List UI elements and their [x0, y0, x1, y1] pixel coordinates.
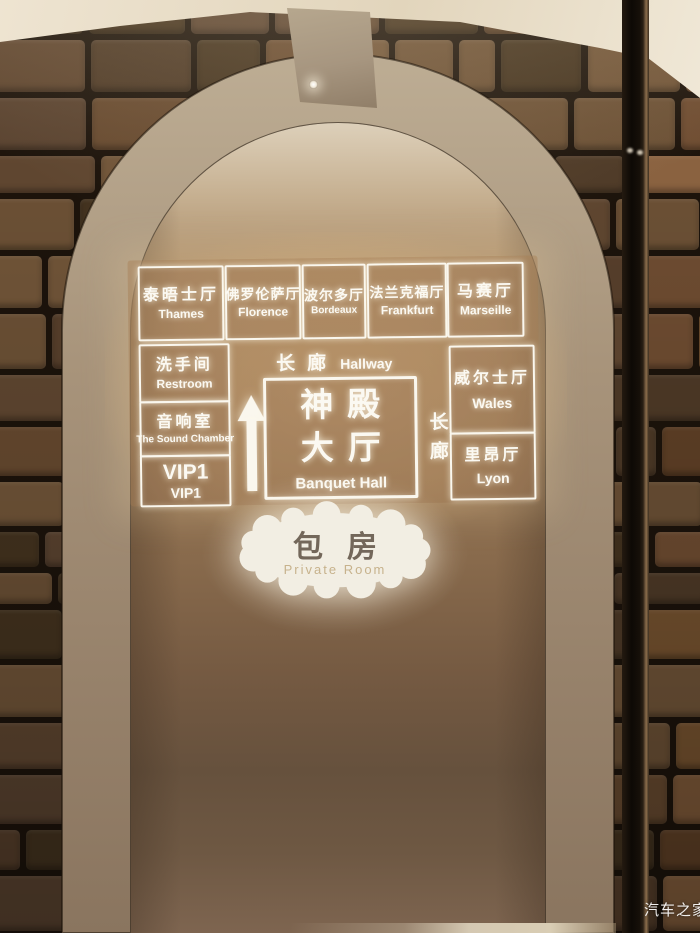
room-name-zh: VIP1	[163, 461, 209, 486]
room-name-zh: 洗手间	[156, 355, 213, 376]
room-box-bordeaux: 波尔多厅 Bordeaux	[302, 264, 367, 340]
room-name-zh: 泰晤士厅	[143, 285, 219, 306]
private-rooms-badge: 包房 Private Room	[233, 500, 437, 606]
room-name-en: The Sound Chamber	[136, 433, 234, 445]
room-name-en: Marseille	[460, 303, 512, 318]
room-box-florence: 佛罗伦萨厅 Florence	[225, 264, 302, 340]
room-name-zh: 法兰克福厅	[369, 284, 444, 302]
hallway-label: 长廊Hallway	[247, 351, 422, 377]
banquet-name-zh-line1: 神殿	[286, 383, 395, 427]
corridor-vertical-label: 长廊	[426, 412, 451, 470]
room-name-en: Thames	[158, 307, 204, 322]
room-name-zh: 佛罗伦萨厅	[225, 286, 300, 304]
photo-scene: 泰晤士厅 Thames 佛罗伦萨厅 Florence 波尔多厅 Bordeaux…	[0, 0, 700, 933]
banquet-name-en: Banquet Hall	[295, 475, 387, 493]
room-box-restroom: 洗手间 Restroom	[139, 343, 231, 403]
room-box-sound-chamber: 音响室 The Sound Chamber	[139, 400, 231, 457]
room-box-wales: 威尔士厅 Wales	[449, 345, 536, 435]
floor-skirting	[290, 923, 616, 933]
light-reflection-dot	[309, 80, 318, 89]
banquet-name-zh-line2: 大厅	[287, 426, 396, 470]
room-name-en: Frankfurt	[381, 303, 434, 318]
hallway-label-zh: 长廊	[276, 353, 338, 375]
watermark: 汽车之家	[644, 899, 700, 920]
room-box-vip1: VIP1 VIP1	[140, 454, 232, 507]
room-box-thames: 泰晤士厅 Thames	[138, 265, 225, 341]
badge-subtitle: Private Room	[233, 562, 437, 577]
banquet-hall-box: 神殿 大厅 Banquet Hall	[263, 376, 418, 500]
room-name-en: Restroom	[156, 376, 212, 391]
room-name-en: Florence	[238, 304, 288, 319]
room-name-zh: 波尔多厅	[304, 286, 364, 304]
room-name-en: Lyon	[477, 470, 510, 486]
room-name-en: Bordeaux	[311, 305, 357, 317]
room-name-en: VIP1	[171, 485, 202, 501]
room-name-zh: 威尔士厅	[454, 368, 530, 389]
room-name-zh: 马赛厅	[457, 282, 514, 303]
room-box-lyon: 里昂厅 Lyon	[450, 432, 537, 501]
room-box-frankfurt: 法兰克福厅 Frankfurt	[367, 263, 448, 339]
projected-directory-sign: 泰晤士厅 Thames 佛罗伦萨厅 Florence 波尔多厅 Bordeaux…	[128, 256, 541, 507]
room-name-zh: 音响室	[156, 412, 213, 433]
badge-title: 包房	[233, 522, 437, 566]
hallway-label-en: Hallway	[340, 355, 392, 372]
room-name-en: Wales	[472, 394, 512, 410]
room-name-zh: 里昂厅	[464, 446, 521, 467]
room-box-marseille: 马赛厅 Marseille	[447, 262, 525, 338]
up-arrow-icon	[237, 395, 266, 493]
